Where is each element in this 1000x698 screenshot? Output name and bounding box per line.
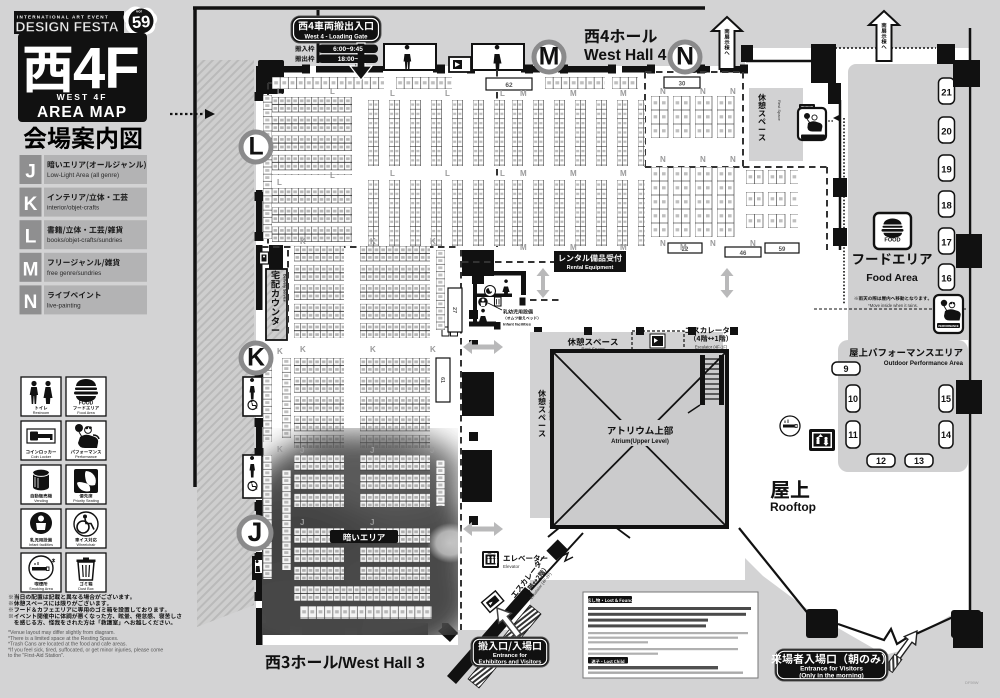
svg-text:11: 11: [848, 430, 858, 440]
svg-text:L: L: [390, 169, 395, 178]
svg-text:62: 62: [505, 82, 513, 89]
svg-text:Escalator (4F-1F): Escalator (4F-1F): [695, 345, 728, 350]
svg-text:Dust Box: Dust Box: [78, 587, 94, 591]
svg-text:N: N: [24, 292, 38, 313]
svg-text:M: M: [570, 243, 577, 252]
svg-text:L: L: [500, 89, 505, 98]
svg-text:61: 61: [439, 377, 445, 383]
svg-text:K: K: [300, 345, 306, 354]
svg-text:Rest Space: Rest Space: [777, 100, 782, 121]
svg-text:M: M: [520, 169, 527, 178]
svg-text:Performance: Performance: [75, 455, 97, 459]
svg-text:M: M: [23, 259, 39, 280]
svg-text:J: J: [25, 162, 36, 183]
svg-text:J: J: [430, 446, 434, 455]
svg-text:19: 19: [941, 165, 952, 176]
svg-text:K: K: [277, 347, 283, 356]
svg-text:DESIGN FESTA: DESIGN FESTA: [16, 20, 119, 35]
svg-text:K: K: [277, 445, 283, 454]
svg-text:M: M: [570, 89, 577, 98]
svg-text:K: K: [430, 345, 436, 354]
svg-text:Delivery Service: Delivery Service: [283, 274, 287, 302]
svg-text:Rooftop: Rooftop: [770, 500, 816, 514]
svg-text:L: L: [330, 171, 335, 180]
svg-text:J: J: [300, 518, 304, 527]
svg-text:Infant facilities: Infant facilities: [29, 543, 53, 547]
svg-text:13: 13: [914, 456, 924, 466]
svg-text:PERFORMANCE: PERFORMANCE: [938, 324, 959, 328]
svg-text:L: L: [445, 169, 450, 178]
svg-text:N: N: [660, 239, 666, 248]
svg-text:59: 59: [779, 247, 786, 253]
svg-text:N: N: [730, 155, 736, 164]
svg-text:Exhibitors and Visitors: Exhibitors and Visitors: [478, 659, 541, 665]
svg-text:K: K: [370, 237, 376, 246]
svg-text:K: K: [24, 194, 38, 215]
svg-text:Outdoor Performance Area: Outdoor Performance Area: [884, 360, 964, 367]
svg-text:N: N: [660, 155, 666, 164]
svg-text:Coin Locker: Coin Locker: [31, 455, 52, 459]
svg-text:FOOD: FOOD: [884, 238, 900, 244]
svg-text:Entrance for: Entrance for: [493, 653, 528, 659]
svg-text:N: N: [700, 87, 706, 96]
svg-text:M: M: [680, 243, 687, 252]
svg-text:West 4 - Loading Gate: West 4 - Loading Gate: [305, 35, 369, 41]
svg-text:M: M: [620, 169, 627, 178]
svg-text:West Hall 4: West Hall 4: [584, 47, 667, 64]
svg-text:12: 12: [876, 456, 886, 466]
svg-text:N: N: [730, 87, 736, 96]
svg-text:Food Area: Food Area: [77, 411, 95, 415]
svg-text:L: L: [500, 169, 505, 178]
svg-text:WEST 4F: WEST 4F: [57, 92, 108, 102]
svg-text:Restroom: Restroom: [33, 411, 49, 415]
svg-text:free genre/sundries: free genre/sundries: [47, 270, 101, 277]
svg-text:L: L: [25, 227, 37, 248]
svg-text:L: L: [248, 134, 263, 161]
svg-text:L: L: [277, 178, 282, 187]
svg-text:46: 46: [740, 251, 747, 257]
svg-text:Atrium(Upper Level): Atrium(Upper Level): [611, 439, 669, 445]
svg-text:M: M: [620, 89, 627, 98]
svg-text:18:00~: 18:00~: [338, 56, 359, 63]
svg-text:DF59W: DF59W: [965, 680, 979, 685]
svg-text:books/objet-crafts/sundries: books/objet-crafts/sundries: [47, 237, 122, 244]
svg-text:J: J: [300, 446, 304, 455]
svg-text:M: M: [539, 44, 560, 71]
svg-text:9: 9: [843, 364, 848, 374]
svg-text:*Move inside when it rains.: *Move inside when it rains.: [868, 303, 918, 308]
svg-text:15: 15: [941, 394, 951, 404]
svg-text:Infant facilities: Infant facilities: [503, 322, 532, 327]
svg-text:17: 17: [941, 238, 952, 249]
svg-text:M: M: [620, 243, 627, 252]
svg-text:interior/objet-crafts: interior/objet-crafts: [47, 205, 99, 212]
svg-text:K: K: [370, 345, 376, 354]
svg-text:N: N: [710, 239, 716, 248]
svg-text:FOOD: FOOD: [79, 401, 94, 407]
svg-text:K: K: [430, 237, 436, 246]
svg-text:Rental Equipment: Rental Equipment: [567, 265, 614, 271]
svg-text:Entrance for Visitors: Entrance for Visitors: [800, 666, 863, 673]
svg-text:Low-Light Area (all genre): Low-Light Area (all genre): [47, 172, 119, 179]
svg-text:M: M: [520, 89, 527, 98]
svg-text:K: K: [300, 237, 306, 246]
svg-text:14: 14: [941, 430, 951, 440]
svg-text:20: 20: [941, 127, 952, 138]
svg-text:L: L: [330, 87, 335, 96]
svg-text:Elevator: Elevator: [503, 564, 520, 569]
svg-text:/West Hall 3: /West Hall 3: [338, 655, 425, 672]
svg-text:Priority Seating: Priority Seating: [73, 499, 99, 503]
svg-text:Vending: Vending: [34, 499, 48, 503]
svg-text:59: 59: [131, 13, 151, 32]
svg-text:AREA MAP: AREA MAP: [37, 104, 127, 121]
svg-text:Wheelchair: Wheelchair: [77, 543, 97, 547]
svg-text:30: 30: [679, 82, 686, 88]
svg-text:Smoking Area: Smoking Area: [29, 587, 54, 591]
svg-text:to the "First-Aid Station".: to the "First-Aid Station".: [8, 653, 64, 659]
svg-text:(Only in the morning): (Only in the morning): [799, 673, 864, 680]
svg-text:J: J: [248, 517, 263, 547]
svg-text:L: L: [390, 89, 395, 98]
svg-text:16: 16: [941, 274, 952, 285]
svg-text:live-painting: live-painting: [47, 302, 81, 309]
svg-text:N: N: [750, 239, 756, 248]
svg-text:27: 27: [451, 307, 457, 313]
svg-text:M: M: [520, 243, 527, 252]
svg-text:J: J: [370, 446, 374, 455]
svg-text:18: 18: [941, 201, 952, 212]
svg-text:6:00~9:45: 6:00~9:45: [333, 46, 363, 53]
svg-text:N: N: [660, 87, 666, 96]
svg-text:L: L: [445, 89, 450, 98]
svg-text:L: L: [277, 87, 282, 96]
svg-text:21: 21: [941, 88, 952, 99]
svg-text:M: M: [570, 169, 577, 178]
svg-text:K: K: [247, 345, 265, 372]
svg-text:Food Area: Food Area: [866, 272, 918, 284]
svg-text:J: J: [370, 518, 374, 527]
svg-text:N: N: [700, 155, 706, 164]
svg-text:10: 10: [848, 394, 858, 404]
svg-text:N: N: [676, 44, 694, 71]
